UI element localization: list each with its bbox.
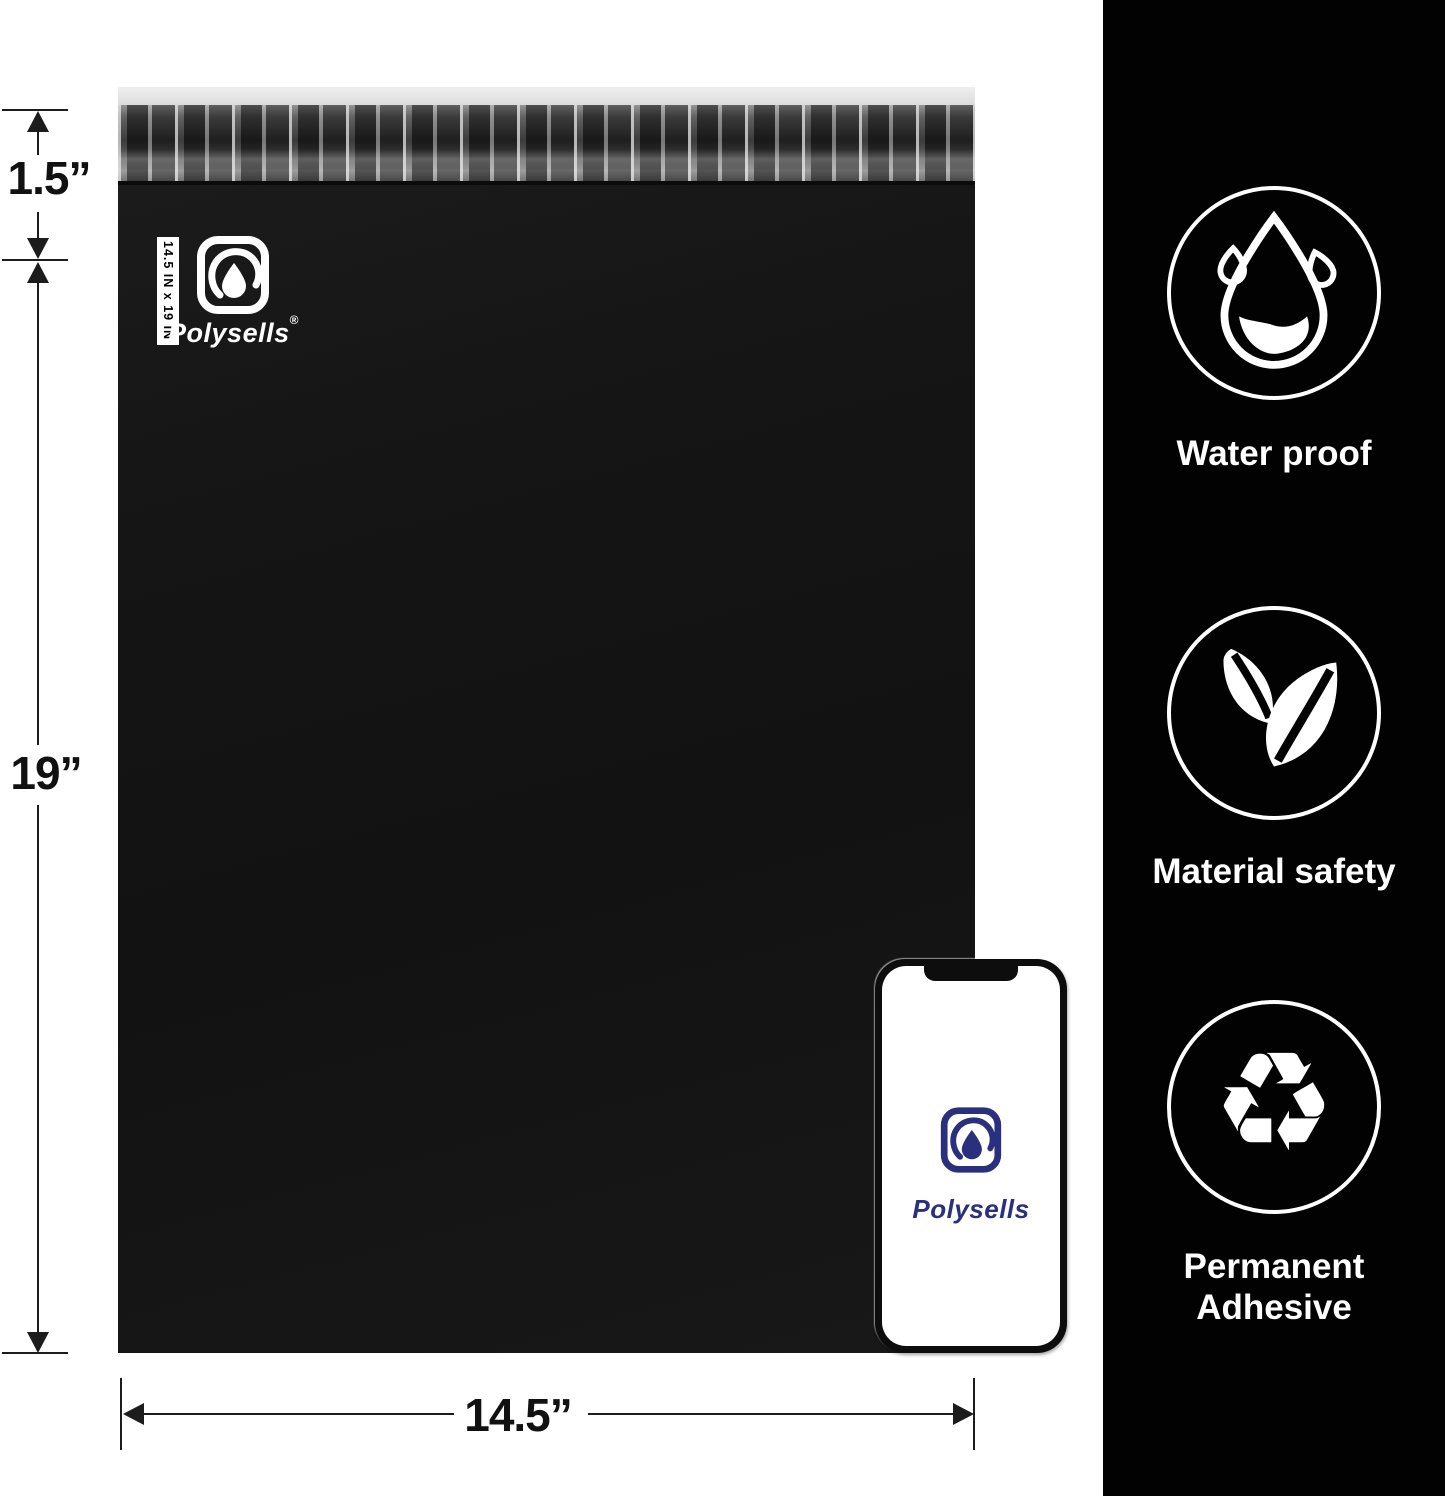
bag-height-label: 19” [0, 748, 92, 798]
polysells-logo-icon [196, 235, 270, 315]
feature-label-permanent-adhesive: Permanent Adhesive [1149, 1246, 1399, 1328]
feature-sidebar: Water proof Material safety ♻ Permanent … [1103, 0, 1445, 1496]
poly-mailer-bag: 14.5 IN x 19 IN Polysells® [118, 87, 975, 1353]
permanent-adhesive-badge: ♻ [1167, 1000, 1381, 1214]
flap-height-label: 1.5” [0, 153, 98, 203]
recycle-icon: ♻ [1212, 1034, 1336, 1172]
bag-brand-text: Polysells® [166, 313, 301, 349]
feature-label-material-safety: Material safety [1103, 851, 1445, 892]
bag-release-liner-strip [118, 87, 975, 105]
bag-brand-name: Polysells [168, 318, 290, 348]
phone-notch [924, 966, 1018, 981]
material-safety-badge [1167, 606, 1381, 820]
product-infographic: 14.5 IN x 19 IN Polysells® 1.5” 19” 14. [0, 0, 1445, 1496]
phone-screen: Polysells [882, 966, 1060, 1346]
water-proof-badge [1167, 186, 1381, 400]
phone-mockup: Polysells [875, 959, 1067, 1353]
water-drop-icon [1171, 190, 1377, 396]
polysells-logo-icon-phone [940, 1106, 1002, 1174]
bag-width-label: 14.5” [448, 1390, 588, 1440]
registered-mark: ® [290, 313, 299, 327]
adhesive-flap-strip [118, 105, 975, 185]
feature-label-water-proof: Water proof [1103, 433, 1445, 474]
leaves-icon [1171, 610, 1377, 816]
phone-brand-text: Polysells [882, 1194, 1060, 1225]
